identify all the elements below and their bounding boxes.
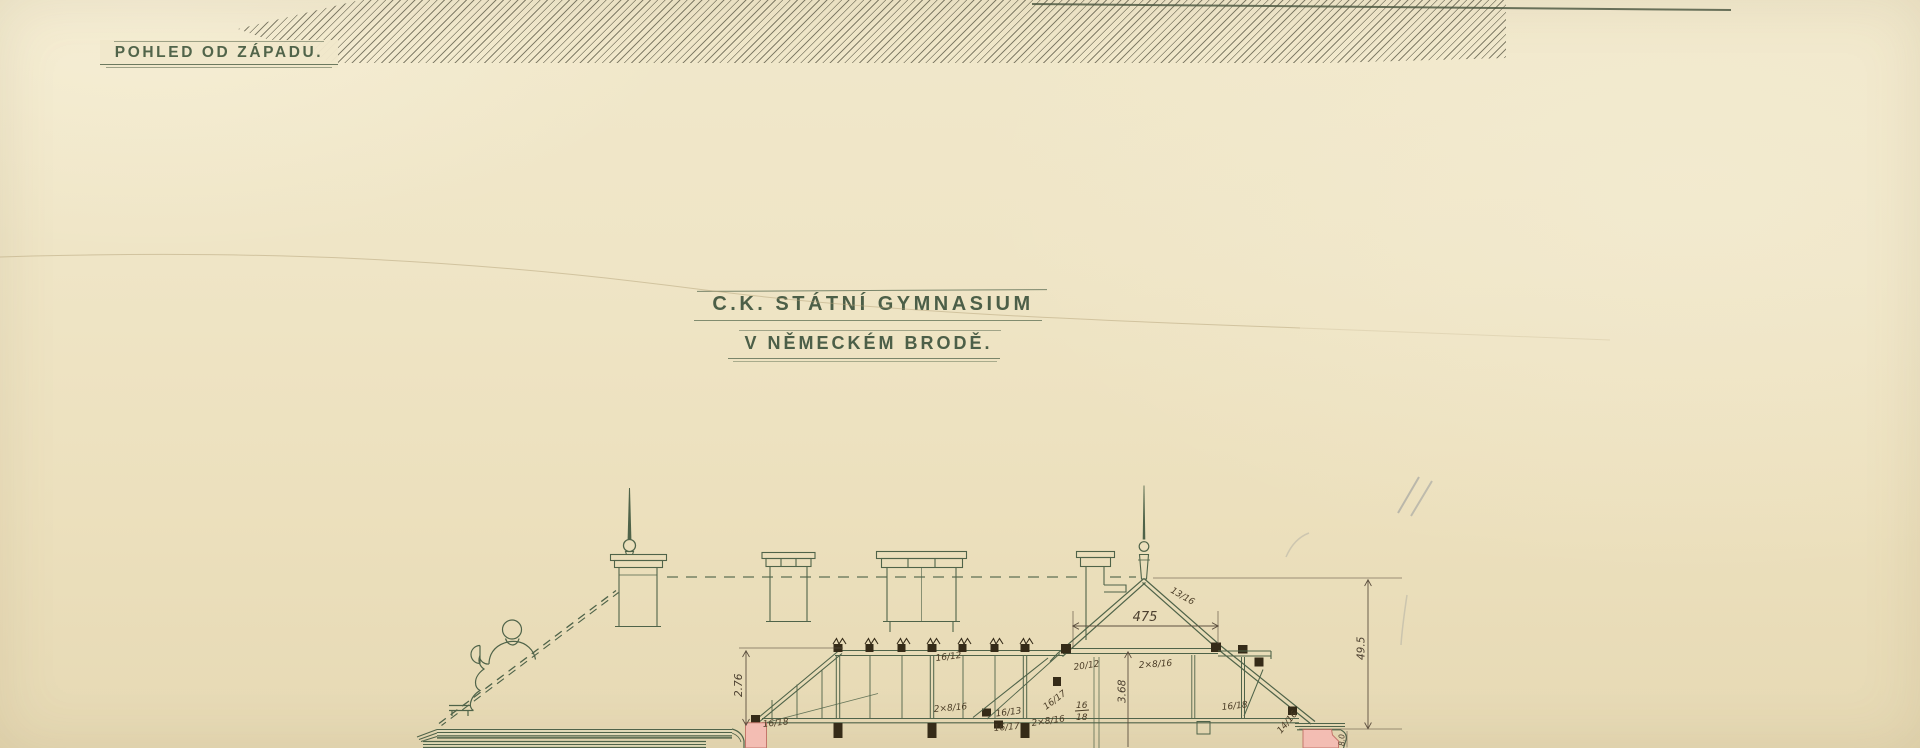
chimney-finial-ball	[624, 540, 636, 552]
dim-span: 475	[1133, 610, 1158, 625]
purlin-blocks	[751, 643, 1297, 739]
timber-mark: 16/13	[995, 706, 1022, 719]
left-rafter	[749, 651, 878, 728]
chimney-finial-spike	[628, 488, 632, 540]
chimney-1	[611, 488, 667, 627]
timber-mark: 2×8/16	[1139, 659, 1173, 671]
collar-beam	[1063, 649, 1218, 654]
timber-mark: 16	[1076, 701, 1088, 711]
dim-attic-height: 3.68	[1117, 679, 1129, 703]
rafter-tick-marks	[833, 639, 1033, 645]
drawing-sheet: POHLED OD ZÁPADU. C.K. STÁTNÍ GYMNASIUM …	[0, 0, 1920, 748]
truss-chords	[762, 651, 1299, 723]
section-drawing: 475 2.76 3.68 49.5 8.0 16/18 16/12 2×8/1…	[0, 0, 1920, 748]
section-interior	[1192, 655, 1210, 734]
left-wing-cornice	[417, 729, 744, 748]
timber-mark: 2×8/16	[1031, 714, 1066, 729]
gable-spire	[1138, 486, 1150, 580]
hanger-block	[834, 723, 843, 738]
dimension-lines	[739, 578, 1402, 748]
top-ruling-line	[1032, 4, 1731, 10]
right-lower-slope	[1217, 646, 1315, 724]
ornament-ball	[503, 620, 522, 639]
pencil-marks	[1286, 477, 1432, 645]
timber-mark: 16/12	[935, 651, 962, 664]
timber-mark: 13/16	[1169, 586, 1197, 608]
timber-mark: 16/18	[762, 717, 789, 730]
hanger-block	[1021, 723, 1030, 738]
dim-left-height: 2.76	[733, 673, 745, 697]
volute-ornament	[449, 620, 536, 716]
chimney-2	[762, 553, 815, 622]
timber-mark: 16/17	[993, 722, 1020, 734]
hanger-block	[928, 723, 937, 738]
timber-mark: 18	[1076, 713, 1088, 723]
chimney-3	[877, 552, 967, 633]
dim-ridge-height: 49.5	[1356, 636, 1368, 660]
timber-mark: 20/12	[1073, 659, 1100, 673]
dim-cornice-height: 8.0	[1338, 734, 1347, 746]
right-wall-section	[1303, 730, 1339, 748]
paper-crease	[0, 254, 1610, 340]
timber-mark: 16/17	[1042, 689, 1069, 713]
cornice-end-corbel	[732, 729, 744, 748]
